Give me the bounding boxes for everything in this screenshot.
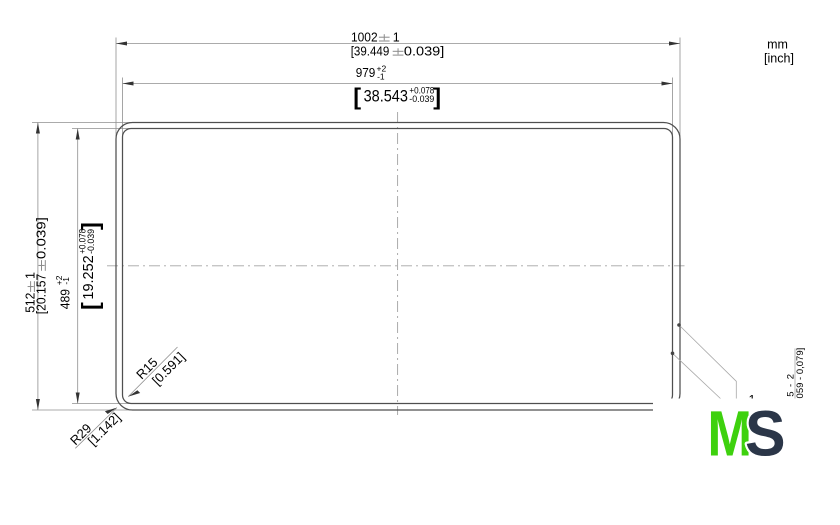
svg-text:[: [ <box>353 84 361 110</box>
svg-text:]: ] <box>433 84 441 110</box>
svg-text:]: ] <box>77 222 103 230</box>
svg-text:19.252: 19.252 <box>80 255 97 299</box>
svg-text:0.039]: 0.039] <box>404 44 444 58</box>
svg-text:489: 489 <box>59 289 73 309</box>
svg-text:-1: -1 <box>377 71 385 81</box>
svg-text:38.543: 38.543 <box>364 87 408 105</box>
svg-text:-0.039: -0.039 <box>409 94 434 104</box>
svg-text:1: 1 <box>393 30 400 44</box>
svg-text:-1: -1 <box>61 277 71 285</box>
svg-text:[: [ <box>77 302 103 310</box>
svg-text:mm: mm <box>767 37 788 51</box>
svg-text:S: S <box>745 398 786 470</box>
svg-text:[39.449: [39.449 <box>351 44 390 58</box>
svg-text:0.039]: 0.039] <box>35 217 49 259</box>
svg-text:1002: 1002 <box>351 30 378 44</box>
svg-text:[20.157: [20.157 <box>35 274 49 315</box>
svg-text:979: 979 <box>356 66 376 80</box>
svg-text:-0.039: -0.039 <box>86 229 96 254</box>
svg-text:[inch]: [inch] <box>764 51 794 65</box>
